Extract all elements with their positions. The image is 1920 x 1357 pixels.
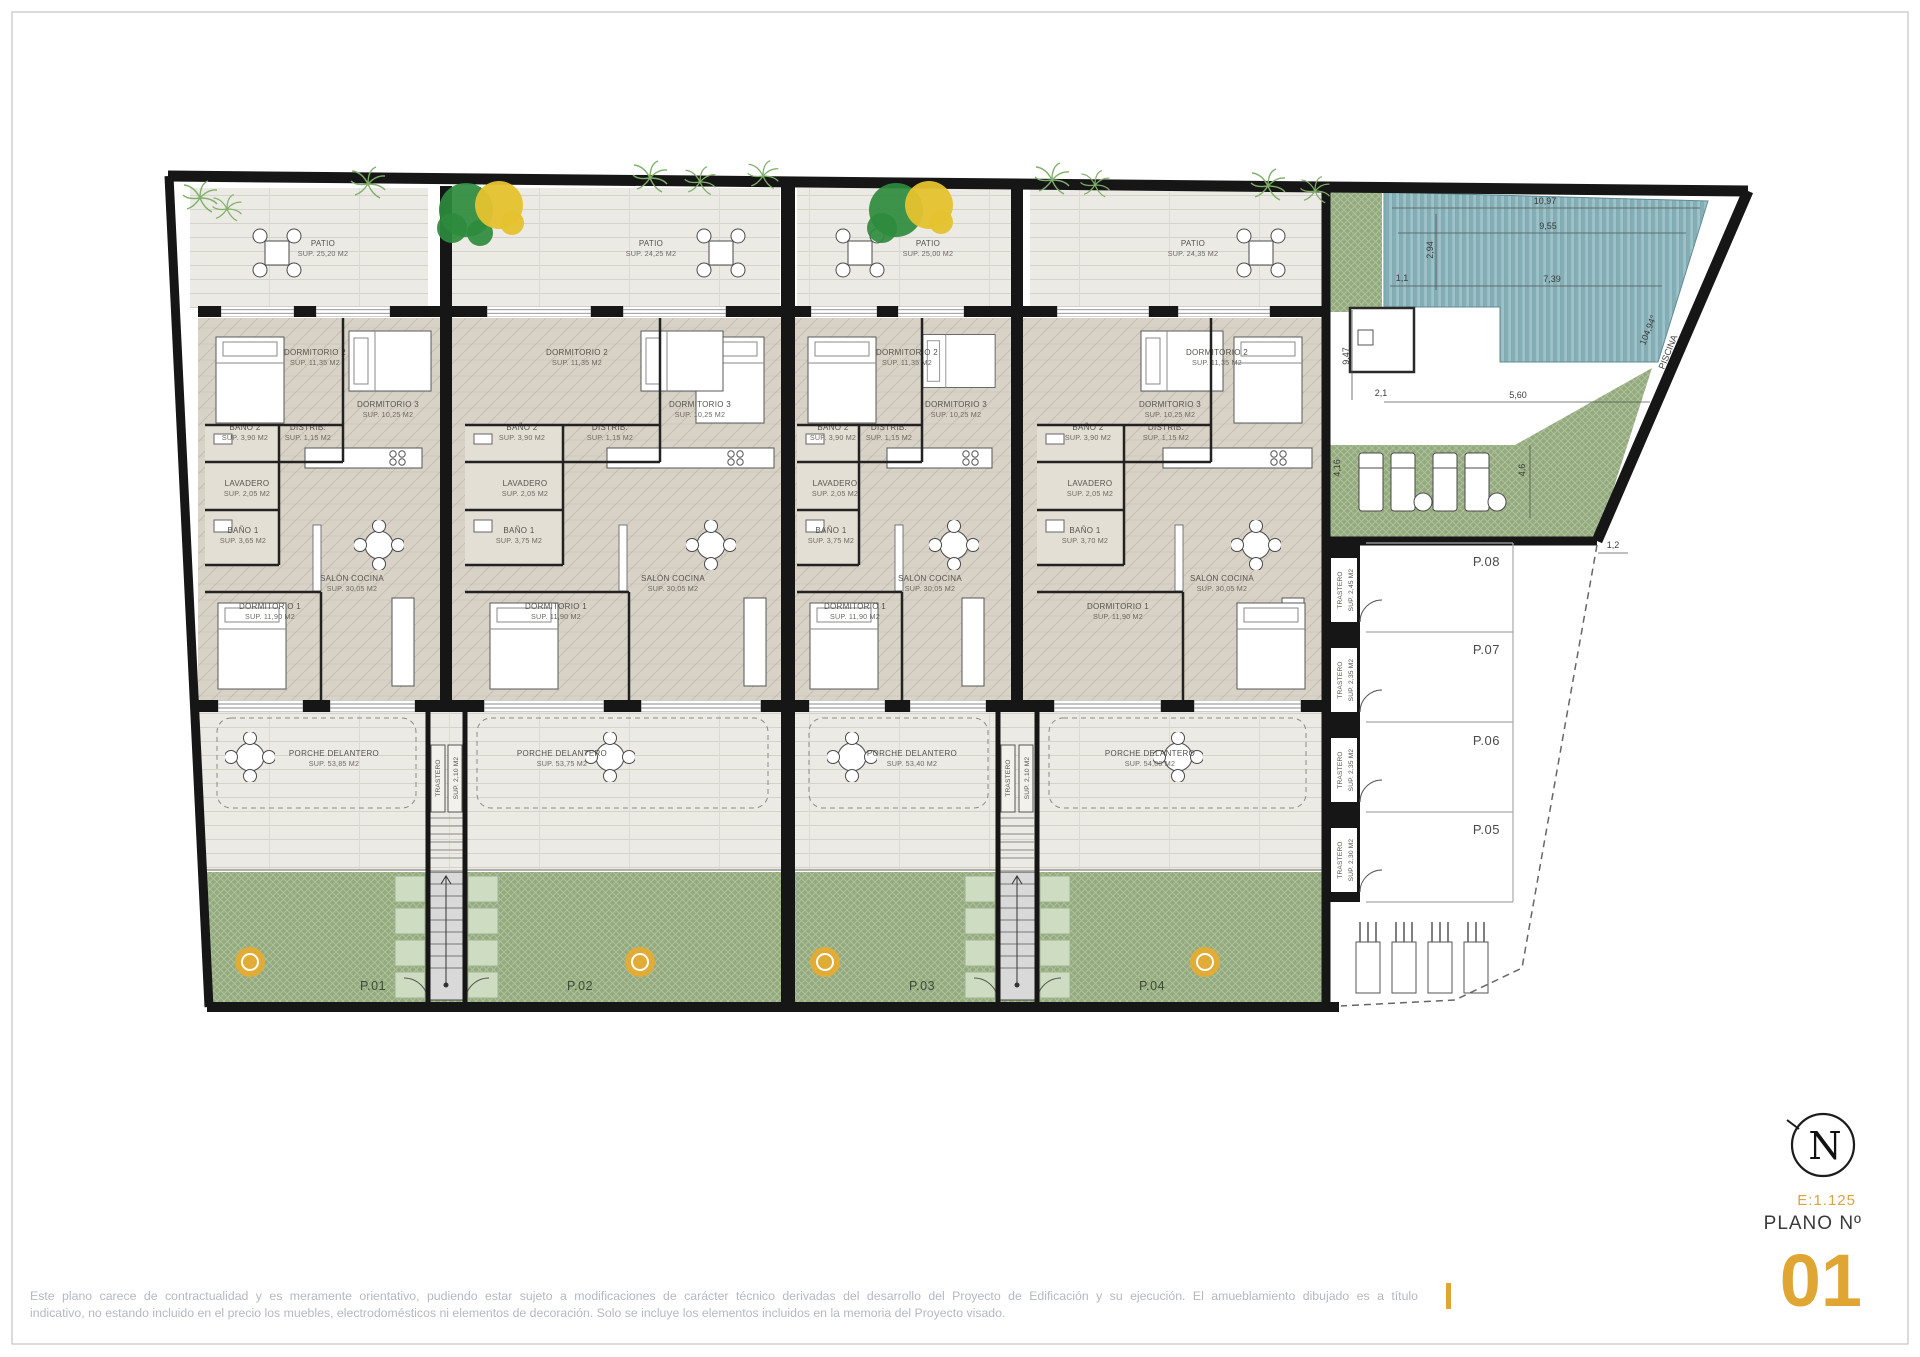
salon-area: SUP. 30,05 M2	[648, 584, 698, 593]
plan-sheet: PATIO SUP. 25,20 M2 DORMITORIO 2 SUP. 11…	[0, 0, 1920, 1357]
stair-trastero-name: TRASTERO	[1005, 759, 1012, 797]
kitchen-counter	[607, 448, 774, 468]
scale-label: E:1.125	[1797, 1192, 1856, 1209]
dorm1-area: SUP. 11,90 M2	[830, 612, 880, 621]
stair-trastero-name: TRASTERO	[435, 759, 442, 797]
outdoor-zone	[1322, 191, 1708, 540]
dorm3-name: DORMITORIO 3	[357, 400, 419, 409]
plot-label: P.02	[567, 979, 593, 993]
garden-marker	[810, 947, 840, 977]
dim-low: 7,39	[1543, 274, 1561, 284]
lavadero-area: SUP. 2,05 M2	[1067, 489, 1113, 498]
patio-area: SUP. 25,00 M2	[903, 249, 953, 258]
patio-area: SUP. 24,35 M2	[1168, 249, 1218, 258]
dorm2-area: SUP. 11,35 M2	[552, 358, 602, 367]
lounger-table	[1414, 493, 1432, 511]
bano2-area: SUP. 3,90 M2	[499, 433, 545, 442]
dorm3-name: DORMITORIO 3	[925, 400, 987, 409]
dorm3-area: SUP. 10,25 M2	[363, 410, 413, 419]
sofa	[962, 598, 984, 686]
dorm2-area: SUP. 11,35 M2	[882, 358, 932, 367]
bed	[349, 331, 431, 391]
lawn-strip	[1330, 191, 1382, 312]
dorm1-name: DORMITORIO 1	[239, 602, 301, 611]
plot-label: P.04	[1139, 979, 1165, 993]
garden-marker	[625, 947, 655, 977]
plan-number: 01	[1780, 1239, 1862, 1322]
garden-marker	[235, 947, 265, 977]
dorm2-name: DORMITORIO 2	[546, 348, 608, 357]
dorm2-name: DORMITORIO 2	[284, 348, 346, 357]
parking-space-label: P.07	[1473, 642, 1500, 657]
dorm2-name: DORMITORIO 2	[1186, 348, 1248, 357]
bed	[923, 335, 995, 388]
site-boundary-dashed	[1341, 545, 1597, 1006]
plot-label: P.01	[360, 979, 386, 993]
dorm3-name: DORMITORIO 3	[1139, 400, 1201, 409]
trastero-area: SUP. 2,30 M2	[1348, 839, 1355, 882]
trastero-area: SUP. 2,35 M2	[1348, 749, 1355, 792]
dim-c: 5,60	[1509, 390, 1527, 400]
parking-space-label: P.06	[1473, 733, 1500, 748]
bano1-area: SUP. 3,75 M2	[496, 536, 542, 545]
dorm2-area: SUP. 11,35 M2	[1192, 358, 1242, 367]
lavadero-area: SUP. 2,05 M2	[502, 489, 548, 498]
bano1-name: BAÑO 1	[815, 526, 846, 535]
dorm2-name: DORMITORIO 2	[876, 348, 938, 357]
trastero-name: TRASTERO	[1337, 751, 1344, 789]
trastero-area: SUP. 2,45 M2	[1348, 569, 1355, 612]
dim-top: 10,97	[1534, 196, 1557, 206]
dim-left: 2,94	[1425, 241, 1435, 259]
door-arc	[1360, 780, 1382, 802]
dim-f: 4,16	[1332, 459, 1342, 477]
dorm2-area: SUP. 11,35 M2	[290, 358, 340, 367]
dorm1-name: DORMITORIO 1	[1087, 602, 1149, 611]
distrib-area: SUP. 1,15 M2	[1143, 433, 1189, 442]
parking-bays: P.08 P.07 P.06 P.05	[1366, 543, 1513, 902]
dim-a: 2,1	[1375, 388, 1388, 398]
distrib-area: SUP. 1,15 M2	[866, 433, 912, 442]
lavadero-area: SUP. 2,05 M2	[224, 489, 270, 498]
plot-label: P.03	[909, 979, 935, 993]
bano1-area: SUP. 3,65 M2	[220, 536, 266, 545]
bano2-area: SUP. 3,90 M2	[1065, 433, 1111, 442]
patio-name: PATIO	[639, 239, 663, 248]
compass-tick	[1787, 1120, 1799, 1129]
sofa	[392, 598, 414, 686]
porche-area: SUP. 53,40 M2	[887, 759, 937, 768]
trastero-name: TRASTERO	[1337, 661, 1344, 699]
dim-e: 1,2	[1607, 540, 1620, 550]
tv-unit	[619, 525, 627, 591]
bano1-name: BAÑO 1	[503, 526, 534, 535]
dim-b: 1,1	[1396, 273, 1409, 283]
porche-area: SUP. 53,85 M2	[309, 759, 359, 768]
sofa	[744, 598, 766, 686]
lavadero-name: LAVADERO	[225, 479, 270, 488]
door-arc	[1360, 600, 1382, 622]
salon-name: SALÓN COCINA	[320, 574, 384, 583]
bano1-name: BAÑO 1	[227, 526, 258, 535]
floor-plan-drawing: PATIO SUP. 25,20 M2 DORMITORIO 2 SUP. 11…	[0, 0, 1920, 1357]
dorm1-name: DORMITORIO 1	[525, 602, 587, 611]
bano2-area: SUP. 3,90 M2	[810, 433, 856, 442]
disclaimer: Este plano carece de contractualidad y e…	[30, 1288, 1418, 1323]
pool-equipment	[1358, 330, 1373, 345]
salon-name: SALÓN COCINA	[898, 574, 962, 583]
lavadero-area: SUP. 2,05 M2	[812, 489, 858, 498]
tv-unit	[1175, 525, 1183, 591]
trastero-area: SUP. 2,35 M2	[1348, 659, 1355, 702]
kitchen-counter	[305, 448, 422, 468]
dorm1-area: SUP. 11,90 M2	[245, 612, 295, 621]
bano1-area: SUP. 3,75 M2	[808, 536, 854, 545]
dorm3-area: SUP. 10,25 M2	[675, 410, 725, 419]
kitchen-counter	[1163, 448, 1312, 468]
dorm3-area: SUP. 10,25 M2	[1145, 410, 1195, 419]
patio-name: PATIO	[916, 239, 940, 248]
salon-area: SUP. 30,05 M2	[1197, 584, 1247, 593]
dim-side: 9,47	[1341, 347, 1351, 365]
bano1-name: BAÑO 1	[1069, 526, 1100, 535]
salon-area: SUP. 30,05 M2	[327, 584, 377, 593]
dorm1-area: SUP. 11,90 M2	[1093, 612, 1143, 621]
disclaimer-line-1: Este plano carece de contractualidad y e…	[30, 1288, 1418, 1305]
disclaimer-line-2: indicativo, no estando incluido en el pr…	[30, 1305, 1418, 1322]
bike-racks	[1356, 922, 1488, 993]
bano2-area: SUP. 3,90 M2	[222, 433, 268, 442]
dorm3-area: SUP. 10,25 M2	[931, 410, 981, 419]
porche-name: PORCHE DELANTERO	[517, 749, 607, 758]
porche-name: PORCHE DELANTERO	[867, 749, 957, 758]
bano1-area: SUP. 3,70 M2	[1062, 536, 1108, 545]
dim-mid: 9,55	[1539, 221, 1557, 231]
parking-space-label: P.05	[1473, 822, 1500, 837]
sun-loungers	[1359, 453, 1506, 511]
patio-area: SUP. 25,20 M2	[298, 249, 348, 258]
patio-name: PATIO	[1181, 239, 1205, 248]
porche-area: SUP. 54,00 M2	[1125, 759, 1175, 768]
porche-area: SUP. 53,75 M2	[537, 759, 587, 768]
stair-trastero-area: SUP. 2,10 M2	[1024, 757, 1031, 800]
distrib-area: SUP. 1,15 M2	[587, 433, 633, 442]
parking-space-label: P.08	[1473, 554, 1500, 569]
salon-name: SALÓN COCINA	[1190, 574, 1254, 583]
lounger-table	[1488, 493, 1506, 511]
gold-tick	[1446, 1283, 1451, 1309]
dorm1-name: DORMITORIO 1	[824, 602, 886, 611]
lavadero-name: LAVADERO	[503, 479, 548, 488]
plan-number-label: PLANO Nº	[1764, 1213, 1862, 1234]
trastero-name: TRASTERO	[1337, 841, 1344, 879]
distrib-area: SUP. 1,15 M2	[285, 433, 331, 442]
title-block: N E:1.125 PLANO Nº 01	[1446, 1114, 1862, 1322]
door-arc	[1360, 870, 1382, 892]
salon-name: SALÓN COCINA	[641, 574, 705, 583]
dorm3-name: DORMITORIO 3	[669, 400, 731, 409]
patio-name: PATIO	[311, 239, 335, 248]
bed	[216, 337, 284, 423]
compass-north-letter: N	[1808, 1124, 1841, 1168]
bed	[808, 337, 876, 423]
porche-name: PORCHE DELANTERO	[289, 749, 379, 758]
dim-d: 4,6	[1517, 464, 1527, 477]
lavadero-name: LAVADERO	[813, 479, 858, 488]
bed	[641, 331, 723, 391]
porche-name: PORCHE DELANTERO	[1105, 749, 1195, 758]
lavadero-name: LAVADERO	[1068, 479, 1113, 488]
patio-area: SUP. 24,25 M2	[626, 249, 676, 258]
bed	[1237, 603, 1305, 689]
dorm1-area: SUP. 11,90 M2	[531, 612, 581, 621]
garden-marker	[1190, 947, 1220, 977]
salon-area: SUP. 30,05 M2	[905, 584, 955, 593]
stair-trastero-area: SUP. 2,10 M2	[453, 757, 460, 800]
trastero-name: TRASTERO	[1337, 571, 1344, 609]
door-arc	[1360, 690, 1382, 712]
